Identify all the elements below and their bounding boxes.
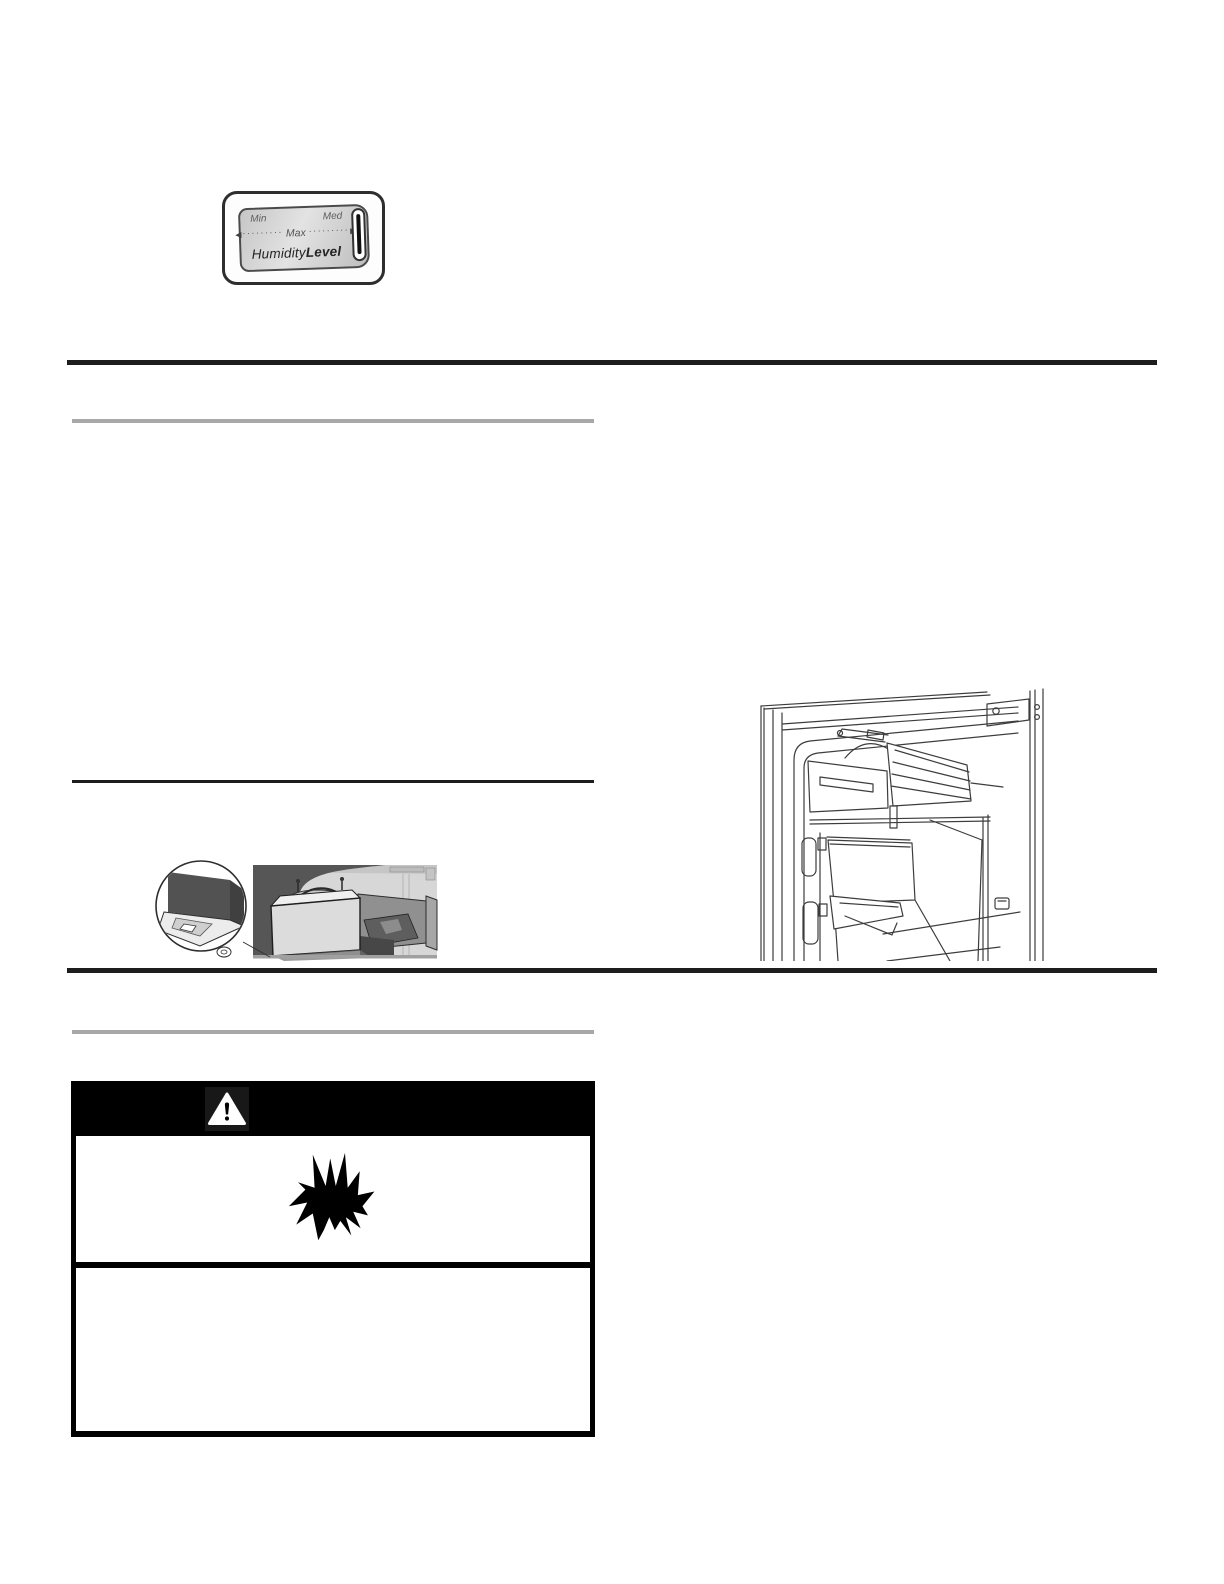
- humidity-slider-track: [351, 208, 367, 261]
- scale-dots-left: ·········: [242, 227, 283, 237]
- warning-box: [71, 1081, 595, 1437]
- subsection-rule-dark: [72, 780, 594, 783]
- explosion-icon: [287, 1146, 379, 1253]
- scale-dots-right: ·········: [309, 225, 350, 235]
- humidity-title-bold: Level: [306, 244, 342, 260]
- humidity-scale: ◀ ········· Max ········· ▶: [241, 225, 351, 241]
- humidity-slider-thumb: [356, 214, 361, 254]
- humidity-panel: Min Med ◀ ········· Max ········· ▶ Humi…: [238, 204, 370, 272]
- humidity-med-label: Med: [323, 211, 343, 223]
- arrow-left-icon: ◀: [235, 231, 241, 239]
- warning-header: [71, 1081, 595, 1136]
- section-divider-rule: [67, 968, 1157, 973]
- humidity-level-control: Min Med ◀ ········· Max ········· ▶ Humi…: [222, 191, 385, 285]
- humidity-title-regular: Humidity: [251, 245, 306, 262]
- subsection-rule: [72, 1030, 594, 1034]
- section-divider-rule: [67, 360, 1157, 365]
- ice-maker-underside-detail-illustration: [150, 858, 440, 962]
- warning-text-panel: [71, 1268, 595, 1437]
- humidity-level-title: HumidityLevel: [241, 243, 351, 262]
- manual-page: Min Med ◀ ········· Max ········· ▶ Humi…: [0, 0, 1224, 1584]
- warning-triangle-icon: [205, 1087, 249, 1131]
- subsection-rule: [72, 419, 594, 423]
- ice-maker-photo: [253, 865, 437, 961]
- freezer-interior-illustration: [750, 688, 1050, 961]
- inset-circle: [156, 861, 246, 957]
- humidity-max-label: Max: [284, 227, 308, 240]
- warning-hazard-panel: [71, 1136, 595, 1262]
- humidity-min-label: Min: [250, 213, 266, 225]
